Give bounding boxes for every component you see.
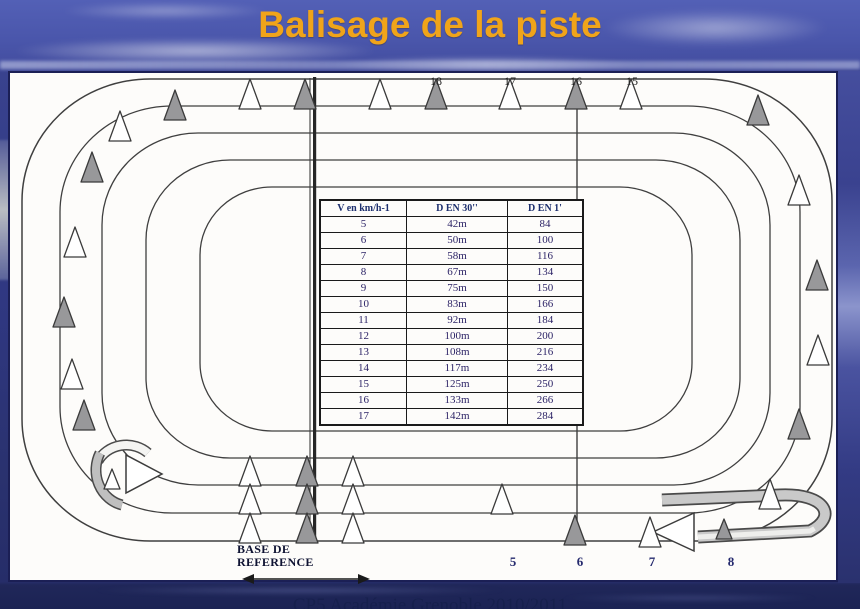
pace-table-cell: 92m	[407, 313, 508, 329]
pace-table-cell: 75m	[407, 281, 508, 297]
cone-white	[109, 111, 131, 141]
cone-white	[342, 513, 364, 543]
pace-table-cell: 142m	[407, 409, 508, 426]
distance-marker-label: 15	[626, 74, 638, 88]
pace-table-cell: 250	[508, 377, 584, 393]
pace-table-cell: 150	[508, 281, 584, 297]
run-direction-arrow	[653, 495, 825, 551]
distance-marker-label: 17	[504, 74, 516, 88]
pace-table-cell: 284	[508, 409, 584, 426]
pace-table-row: 975m150	[320, 281, 583, 297]
cloud	[0, 61, 860, 69]
slide-title: Balisage de la piste	[0, 4, 860, 46]
pace-table-cell: 9	[320, 281, 407, 297]
cone-white	[239, 79, 261, 109]
distance-marker-label: 6	[577, 554, 584, 569]
pace-table-cell: 100m	[407, 329, 508, 345]
pace-table-cell: 216	[508, 345, 584, 361]
cone-gray	[806, 260, 828, 290]
pace-table-cell: 84	[508, 217, 584, 233]
pace-table-column-header: V en km/h-1	[320, 200, 407, 217]
pace-table-cell: 266	[508, 393, 584, 409]
cone-gray	[564, 515, 586, 545]
pace-table-cell: 134	[508, 265, 584, 281]
pace-table-row: 14117m234	[320, 361, 583, 377]
pace-table-cell: 58m	[407, 249, 508, 265]
pace-table-cell: 7	[320, 249, 407, 265]
pace-table-cell: 17	[320, 409, 407, 426]
pace-table-header-row: V en km/h-1D EN 30''D EN 1'	[320, 200, 583, 217]
base-reference-label: BASE DE REFERENCE	[237, 543, 347, 568]
sky-right-band	[838, 71, 860, 583]
pace-table-row: 16133m266	[320, 393, 583, 409]
distance-marker-label: 18	[430, 74, 442, 88]
cone-white	[239, 456, 261, 486]
pace-table-cell: 16	[320, 393, 407, 409]
cone-white	[788, 175, 810, 205]
pace-table-row: 1192m184	[320, 313, 583, 329]
cone-white	[491, 484, 513, 514]
pace-table-row: 650m100	[320, 233, 583, 249]
pace-table-cell: 234	[508, 361, 584, 377]
cone-gray	[747, 95, 769, 125]
pace-table-cell: 50m	[407, 233, 508, 249]
pace-table-row: 15125m250	[320, 377, 583, 393]
pace-table-cell: 67m	[407, 265, 508, 281]
pace-table-column-header: D EN 1'	[508, 200, 584, 217]
pace-table-column-header: D EN 30''	[407, 200, 508, 217]
track-diagram: 181716155678 V en km/h-1D EN 30''D EN 1'…	[8, 71, 838, 582]
pace-table-cell: 184	[508, 313, 584, 329]
pace-table-cell: 13	[320, 345, 407, 361]
pace-table: V en km/h-1D EN 30''D EN 1' 542m84650m10…	[319, 199, 584, 426]
pace-table-cell: 166	[508, 297, 584, 313]
pace-table-row: 12100m200	[320, 329, 583, 345]
pace-table-cell: 125m	[407, 377, 508, 393]
cone-white	[61, 359, 83, 389]
pace-table-cell: 15	[320, 377, 407, 393]
cone-gray	[294, 79, 316, 109]
cone-white	[807, 335, 829, 365]
distance-marker-label: 8	[728, 554, 735, 569]
pace-table-cell: 117m	[407, 361, 508, 377]
base-reference-line1: BASE DE	[237, 543, 347, 556]
pace-table-cell: 8	[320, 265, 407, 281]
pace-table-cell: 10	[320, 297, 407, 313]
pace-table-cell: 100	[508, 233, 584, 249]
pace-table-row: 17142m284	[320, 409, 583, 426]
pace-table-cell: 12	[320, 329, 407, 345]
pace-table-row: 1083m166	[320, 297, 583, 313]
distance-marker-label: 16	[570, 74, 582, 88]
cloud	[90, 586, 510, 595]
cone-white	[64, 227, 86, 257]
distance-marker-label: 7	[649, 554, 656, 569]
pace-table-row: 758m116	[320, 249, 583, 265]
cone-white	[239, 513, 261, 543]
pace-table-cell: 133m	[407, 393, 508, 409]
cone-white	[342, 484, 364, 514]
footer-credit: CP5 Académie Grenoble 2010/2011	[0, 595, 860, 609]
pace-table-row: 13108m216	[320, 345, 583, 361]
cone-gray	[73, 400, 95, 430]
cone-gray	[788, 409, 810, 439]
pace-table-cell: 11	[320, 313, 407, 329]
cone-white	[239, 484, 261, 514]
distance-marker-label: 5	[510, 554, 517, 569]
cone-white	[104, 469, 120, 489]
pace-table-cell: 5	[320, 217, 407, 233]
cone-white	[369, 79, 391, 109]
pace-table-row: 542m84	[320, 217, 583, 233]
pace-table-cell: 14	[320, 361, 407, 377]
cone-white	[342, 456, 364, 486]
pace-table-cell: 83m	[407, 297, 508, 313]
cone-gray	[53, 297, 75, 327]
pace-table-cell: 42m	[407, 217, 508, 233]
cone-gray	[164, 90, 186, 120]
pace-table-cell: 200	[508, 329, 584, 345]
base-reference-arrow	[242, 574, 370, 584]
pace-table-cell: 6	[320, 233, 407, 249]
slide: Balisage de la piste	[0, 0, 860, 609]
turn-arrow-left	[96, 445, 162, 505]
base-reference-line2: REFERENCE	[237, 556, 347, 569]
pace-table-row: 867m134	[320, 265, 583, 281]
pace-table-cell: 116	[508, 249, 584, 265]
pace-table-cell: 108m	[407, 345, 508, 361]
cone-gray	[81, 152, 103, 182]
